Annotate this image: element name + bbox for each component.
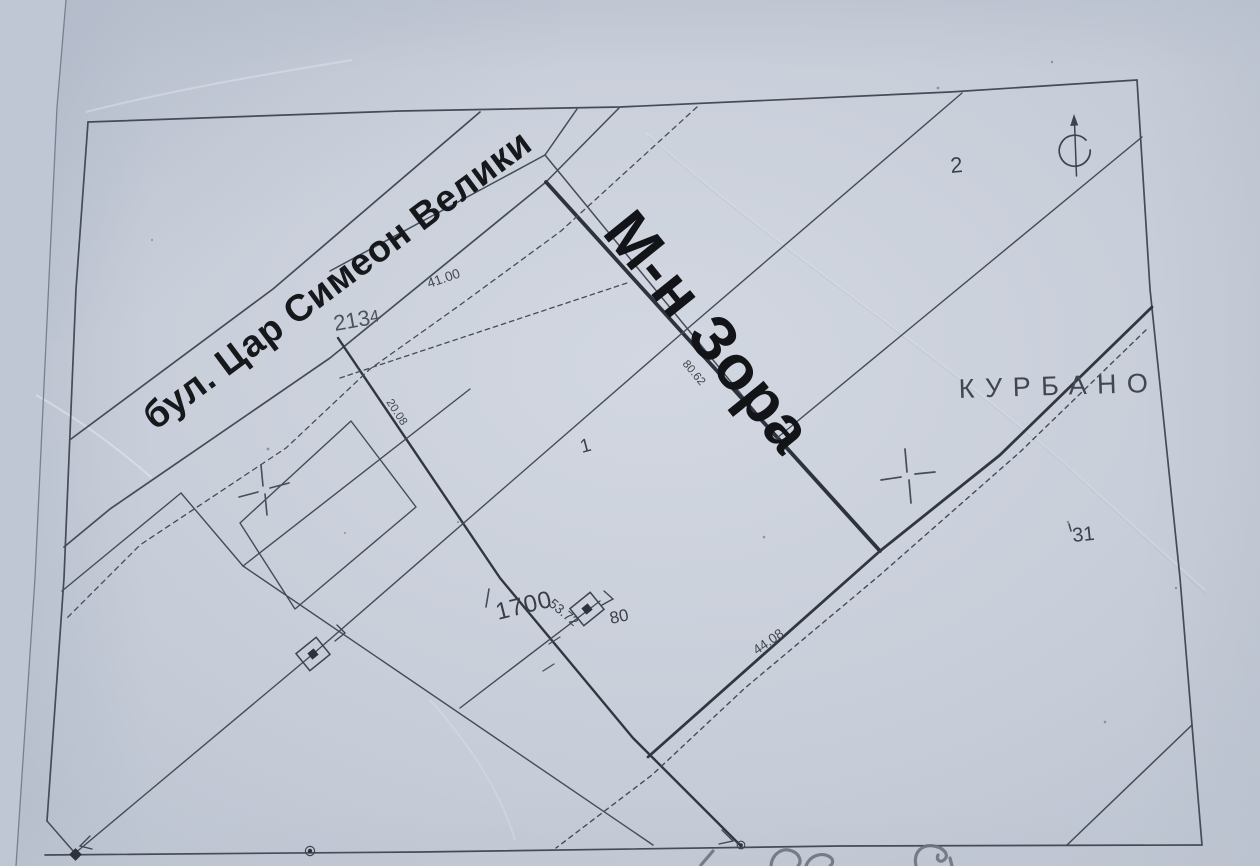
svg-text:КУРБАНО: КУРБАНО xyxy=(958,368,1158,404)
svg-text:2: 2 xyxy=(949,152,963,178)
svg-text:80: 80 xyxy=(608,605,630,628)
svg-text:31: 31 xyxy=(1071,523,1095,547)
